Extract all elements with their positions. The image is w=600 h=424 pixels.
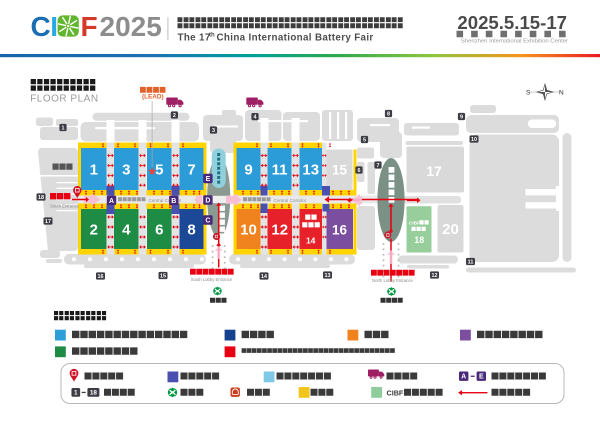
- svg-text:I: I: [50, 11, 58, 42]
- svg-text:C: C: [31, 11, 51, 42]
- svg-text:20: 20: [442, 221, 459, 238]
- svg-text:18: 18: [414, 235, 424, 245]
- svg-text:15: 15: [160, 273, 166, 279]
- svg-text:South Entrance: South Entrance: [50, 203, 80, 208]
- svg-text:11: 11: [272, 162, 288, 179]
- svg-text:C: C: [205, 218, 210, 225]
- svg-text:E: E: [206, 176, 211, 183]
- svg-text:1: 1: [74, 390, 78, 397]
- svg-text:CIBF: CIBF: [387, 388, 404, 397]
- svg-text:10: 10: [471, 137, 477, 143]
- svg-text:11: 11: [468, 259, 474, 265]
- svg-text:17: 17: [45, 219, 51, 225]
- svg-text:North Lobby Entrance: North Lobby Entrance: [372, 278, 413, 283]
- svg-text:13: 13: [302, 162, 319, 179]
- svg-text:6: 6: [155, 222, 163, 239]
- svg-text:4: 4: [122, 222, 131, 239]
- svg-text:16: 16: [98, 274, 104, 280]
- svg-text:15: 15: [332, 163, 348, 178]
- svg-text:14: 14: [306, 236, 316, 246]
- svg-text:3: 3: [212, 128, 215, 134]
- svg-text:2025: 2025: [100, 11, 162, 42]
- svg-text:CIBF: CIBF: [409, 220, 420, 225]
- svg-text:2: 2: [173, 113, 176, 119]
- svg-text:5: 5: [363, 137, 366, 143]
- svg-text:(LEAD): (LEAD): [142, 94, 164, 101]
- svg-text:8: 8: [387, 111, 390, 117]
- svg-text:4: 4: [254, 115, 257, 121]
- svg-text:14: 14: [261, 274, 267, 280]
- svg-text:18: 18: [38, 195, 44, 201]
- svg-text:18: 18: [90, 390, 98, 397]
- svg-text:2: 2: [90, 222, 98, 239]
- svg-text:9: 9: [460, 114, 463, 120]
- svg-text:China International Battery Fa: China International Battery Fair: [217, 32, 374, 43]
- svg-text:12: 12: [271, 222, 288, 239]
- svg-text:9: 9: [244, 162, 252, 179]
- svg-text:13: 13: [325, 273, 331, 279]
- svg-text:6: 6: [358, 168, 361, 174]
- svg-text:17: 17: [426, 163, 442, 179]
- svg-text:F: F: [81, 11, 98, 42]
- svg-text:16: 16: [332, 223, 348, 238]
- svg-text:10: 10: [240, 222, 257, 239]
- svg-text:E: E: [479, 374, 484, 381]
- svg-text:Central Corridor: Central Corridor: [274, 198, 307, 203]
- svg-text:South Lobby Entrance: South Lobby Entrance: [191, 277, 233, 282]
- svg-text:5: 5: [155, 162, 163, 179]
- svg-text:12: 12: [432, 273, 438, 279]
- svg-text:8: 8: [187, 222, 195, 239]
- svg-text:2025.5.15-17: 2025.5.15-17: [457, 12, 567, 33]
- svg-text:A: A: [461, 374, 466, 381]
- svg-text:The 17: The 17: [178, 32, 211, 43]
- svg-text:B: B: [171, 198, 176, 205]
- svg-text:7: 7: [377, 163, 380, 169]
- svg-text:S: S: [526, 90, 531, 97]
- svg-text:A: A: [109, 198, 114, 205]
- svg-text:1: 1: [90, 162, 98, 179]
- svg-text:1: 1: [62, 125, 65, 131]
- svg-text:Shenzhen International Exhibit: Shenzhen International Exhibition Center: [461, 39, 568, 45]
- svg-text:N: N: [559, 90, 564, 97]
- svg-text:D: D: [205, 198, 210, 205]
- svg-text:7: 7: [187, 162, 195, 179]
- svg-text:3: 3: [122, 162, 130, 179]
- svg-text:FLOOR PLAN: FLOOR PLAN: [30, 94, 98, 105]
- svg-text:th: th: [209, 33, 215, 39]
